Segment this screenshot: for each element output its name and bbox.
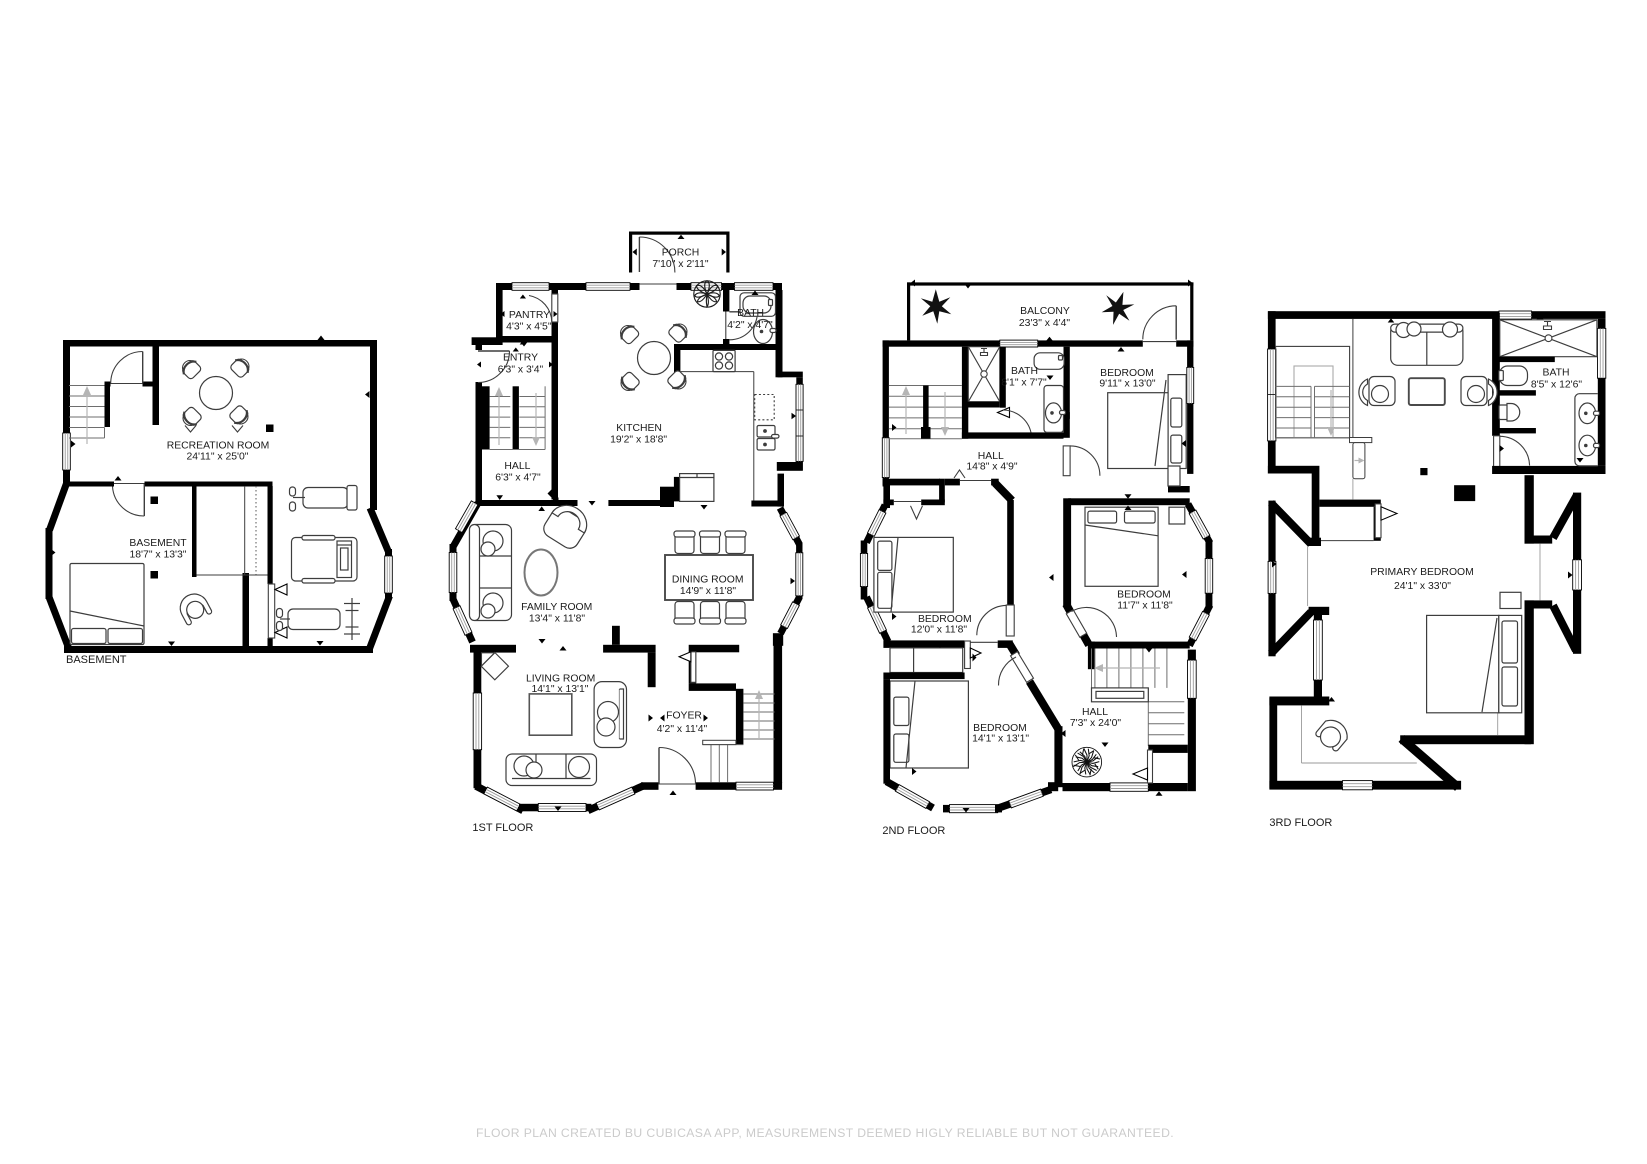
svg-text:RECREATION ROOM: RECREATION ROOM	[167, 441, 270, 452]
svg-text:14'1" x 13'1": 14'1" x 13'1"	[532, 684, 589, 695]
svg-text:BEDROOM: BEDROOM	[918, 614, 972, 625]
svg-text:LIVING ROOM: LIVING ROOM	[526, 674, 595, 685]
svg-text:4'3" x 4'5": 4'3" x 4'5"	[506, 322, 552, 333]
svg-text:KITCHEN: KITCHEN	[616, 423, 662, 434]
svg-text:8'1" x 7'7": 8'1" x 7'7"	[1001, 378, 1047, 389]
svg-text:ENTRY: ENTRY	[503, 353, 538, 364]
svg-text:DINING ROOM: DINING ROOM	[672, 574, 744, 585]
svg-text:19'2" x 18'8": 19'2" x 18'8"	[610, 435, 667, 446]
svg-text:6'3" x 4'7": 6'3" x 4'7"	[495, 473, 541, 484]
svg-text:PRIMARY BEDROOM: PRIMARY BEDROOM	[1370, 567, 1474, 578]
svg-text:BATH: BATH	[1011, 366, 1038, 377]
svg-text:BEDROOM: BEDROOM	[973, 723, 1027, 734]
svg-text:BALCONY: BALCONY	[1020, 306, 1070, 317]
svg-text:PORCH: PORCH	[662, 248, 700, 259]
svg-text:14'8" x 4'9": 14'8" x 4'9"	[966, 462, 1018, 473]
svg-text:BASEMENT: BASEMENT	[129, 538, 187, 549]
svg-text:8'5" x 12'6": 8'5" x 12'6"	[1531, 380, 1583, 391]
svg-text:BASEMENT: BASEMENT	[66, 654, 127, 666]
svg-text:13'4" x 11'8": 13'4" x 11'8"	[529, 614, 586, 625]
svg-text:HALL: HALL	[1082, 707, 1108, 718]
svg-text:6'3" x 3'4": 6'3" x 3'4"	[498, 364, 544, 375]
svg-text:HALL: HALL	[978, 451, 1004, 462]
svg-text:BEDROOM: BEDROOM	[1100, 368, 1154, 379]
svg-text:7'10" x 2'11": 7'10" x 2'11"	[652, 259, 709, 270]
svg-text:9'11" x 13'0": 9'11" x 13'0"	[1099, 379, 1156, 390]
svg-text:14'1" x 13'1": 14'1" x 13'1"	[972, 734, 1029, 745]
svg-text:1ST FLOOR: 1ST FLOOR	[472, 822, 533, 834]
svg-text:2ND FLOOR: 2ND FLOOR	[882, 825, 945, 837]
svg-text:4'2" x 11'4": 4'2" x 11'4"	[657, 724, 708, 735]
svg-text:24'11" x 25'0": 24'11" x 25'0"	[187, 452, 249, 463]
svg-text:4'2" x 4'7": 4'2" x 4'7"	[727, 320, 773, 331]
svg-text:3RD FLOOR: 3RD FLOOR	[1269, 817, 1332, 829]
svg-text:24'1" x 33'0": 24'1" x 33'0"	[1394, 581, 1451, 592]
svg-text:12'0" x 11'8": 12'0" x 11'8"	[911, 625, 968, 636]
svg-text:11'7" x 11'8": 11'7" x 11'8"	[1117, 601, 1173, 612]
svg-text:FLOOR PLAN CREATED BU CUBICASA: FLOOR PLAN CREATED BU CUBICASA APP, MEAS…	[476, 1126, 1174, 1140]
svg-text:18'7" x 13'3": 18'7" x 13'3"	[130, 550, 187, 561]
svg-text:BEDROOM: BEDROOM	[1117, 590, 1171, 601]
svg-text:FOYER: FOYER	[666, 711, 702, 722]
svg-text:7'3" x 24'0": 7'3" x 24'0"	[1070, 718, 1122, 729]
svg-text:14'9" x 11'8": 14'9" x 11'8"	[680, 586, 737, 597]
svg-text:23'3" x 4'4": 23'3" x 4'4"	[1019, 318, 1071, 329]
svg-text:PANTRY: PANTRY	[509, 310, 550, 321]
svg-text:HALL: HALL	[504, 461, 530, 472]
svg-text:BATH: BATH	[737, 308, 764, 319]
svg-text:FAMILY ROOM: FAMILY ROOM	[521, 602, 592, 613]
svg-text:BATH: BATH	[1543, 368, 1570, 379]
